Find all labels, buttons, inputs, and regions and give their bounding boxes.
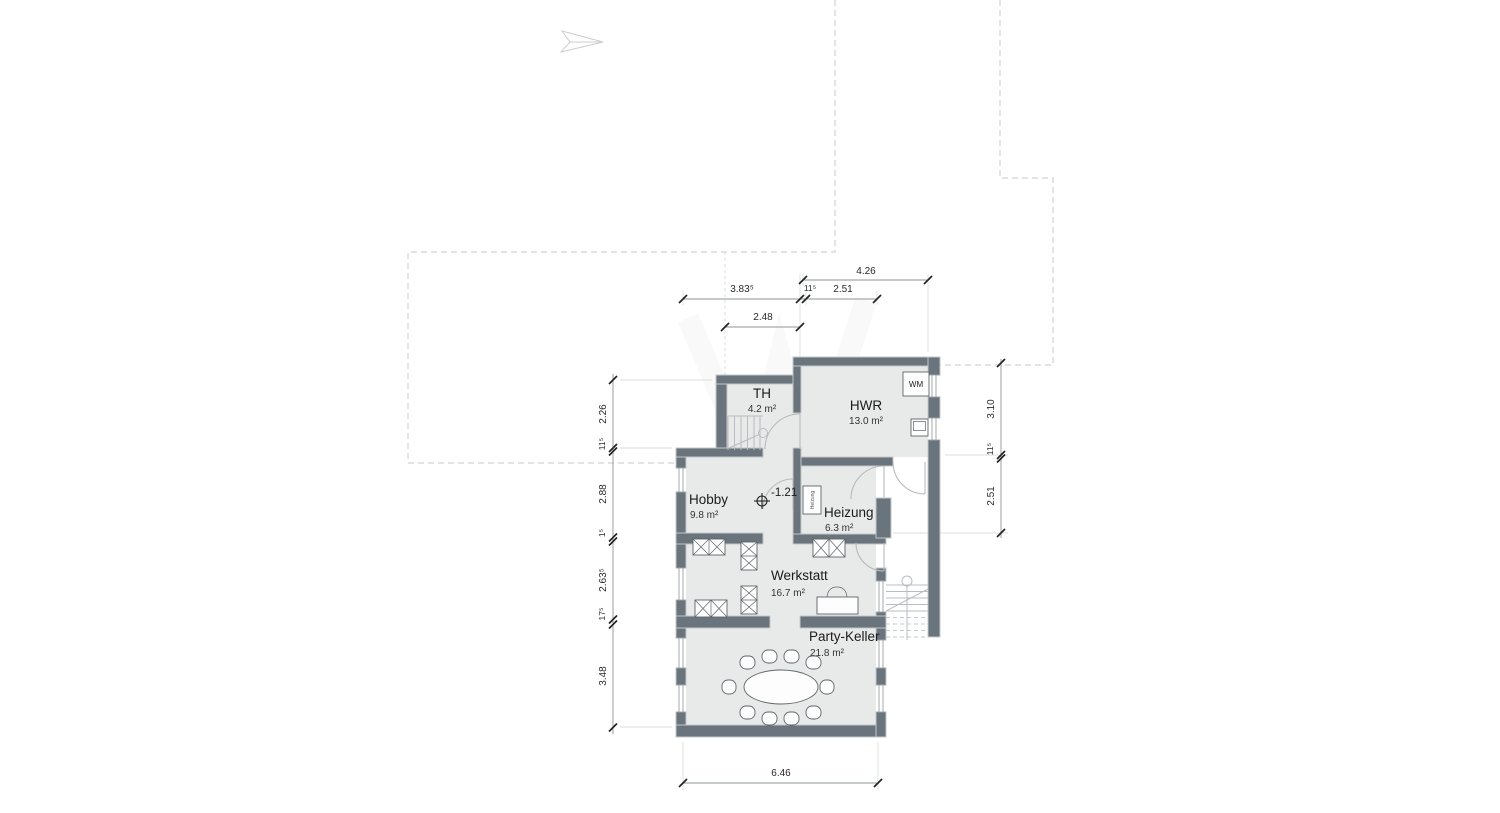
room-label-hobby: Hobby (689, 492, 728, 507)
window (928, 418, 940, 440)
window (676, 468, 686, 492)
room-area-hwr: 13.0 m² (849, 416, 884, 427)
dim-top-115: 11⁵ (804, 283, 816, 293)
dim-left-226: 2.26 (598, 404, 609, 424)
dim-top-3835: 3.83⁵ (730, 284, 754, 295)
window (676, 685, 686, 712)
room-label-th: TH (753, 386, 771, 401)
room-area-th: 4.2 m² (748, 404, 777, 415)
room-label-hwr: HWR (850, 398, 882, 413)
dimension-chain-bottom: 6.46 (679, 768, 882, 787)
window (676, 568, 686, 600)
exterior-stairs (886, 576, 928, 640)
dim-left-175: 17⁵ (597, 608, 607, 621)
dimension-chain-left: 2.26 11⁵ 2.88 1⁵ 2.63⁵ 17⁵ 3.48 (597, 374, 617, 734)
dim-left-288: 2.88 (598, 484, 609, 504)
dim-right-310: 3.10 (986, 399, 997, 419)
boiler-label: Heizung (810, 491, 816, 510)
window (876, 685, 886, 712)
hwr-appliance (911, 419, 928, 436)
level-value: -1.21 (771, 487, 797, 499)
dim-left-348: 3.48 (598, 666, 609, 686)
dimension-chain-right: 3.10 11⁵ 2.51 (985, 359, 1005, 538)
floorplan-canvas: WM Heizung (0, 0, 1500, 813)
basement-floorplan: WM Heizung (0, 0, 1500, 813)
window (676, 638, 686, 668)
dim-top-251: 2.51 (833, 284, 853, 295)
room-label-heizung: Heizung (824, 505, 874, 520)
window (876, 581, 886, 612)
dim-left-15: 1⁵ (597, 529, 607, 537)
cabinet (695, 600, 727, 617)
cabinet (693, 539, 725, 555)
dimension-chain-top: 4.26 3.83⁵ 11⁵ 2.51 2.48 (679, 266, 932, 331)
north-arrow-icon (561, 31, 603, 52)
dim-top-248: 2.48 (753, 312, 773, 323)
cabinet (741, 542, 757, 570)
dim-right-115: 11⁵ (985, 443, 995, 455)
dim-left-115: 11⁵ (597, 438, 607, 450)
room-area-werkstatt: 16.7 m² (771, 588, 806, 599)
dim-top-426: 4.26 (856, 266, 876, 277)
dim-right-251: 2.51 (986, 486, 997, 506)
washing-machine-label: WM (909, 380, 924, 389)
dim-left-2635: 2.63⁵ (598, 568, 609, 592)
room-label-partykeller: Party-Keller (809, 629, 880, 644)
boiler: Heizung (803, 486, 821, 514)
window (876, 640, 886, 668)
room-label-werkstatt: Werkstatt (771, 568, 828, 583)
room-area-heizung: 6.3 m² (825, 523, 854, 534)
washing-machine: WM (903, 372, 929, 396)
window (928, 375, 940, 397)
door-hwr-exit (893, 462, 925, 494)
room-area-partykeller: 21.8 m² (810, 648, 845, 659)
cabinet (813, 539, 845, 557)
cabinet (741, 586, 757, 614)
dim-bottom-646: 6.46 (771, 768, 791, 779)
room-area-hobby: 9.8 m² (690, 510, 719, 521)
